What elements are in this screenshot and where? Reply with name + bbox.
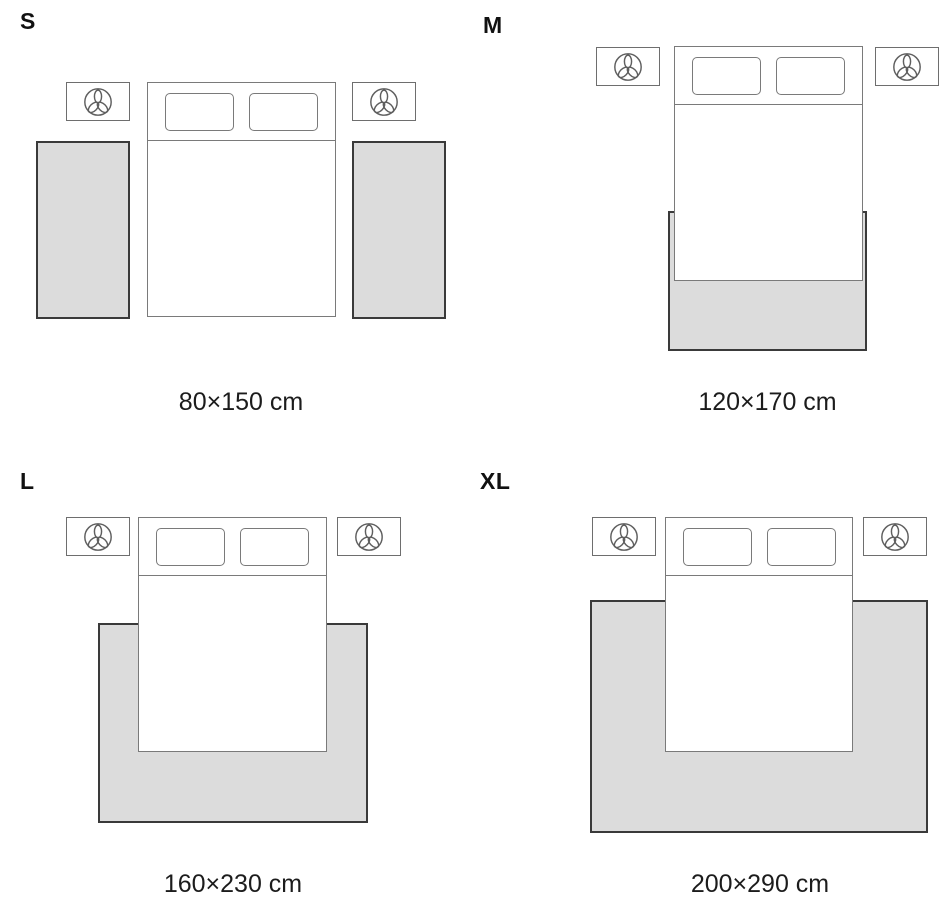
panel-size-xl: XL 200×290 cm: [475, 450, 950, 900]
panel-letter-xl: XL: [480, 468, 510, 495]
nightstand-left: [596, 47, 660, 86]
nightstand-right: [863, 517, 927, 556]
lamp-icon: [367, 85, 401, 119]
nightstand-left: [66, 517, 130, 556]
headboard-divider: [675, 104, 862, 105]
lamp-icon: [81, 85, 115, 119]
nightstand-left: [592, 517, 656, 556]
lamp-icon: [81, 520, 115, 554]
panel-size-s: S 80×150 cm: [0, 0, 475, 450]
nightstand-right: [875, 47, 939, 86]
pillow-left: [692, 57, 761, 95]
size-caption-xl: 200×290 cm: [560, 870, 950, 899]
panel-size-l: L 160×230 cm: [0, 450, 475, 900]
rug-runner-right: [352, 141, 446, 319]
bed: [138, 517, 327, 752]
bed: [665, 517, 853, 752]
pillow-right: [249, 93, 318, 131]
pillow-left: [165, 93, 234, 131]
panel-size-m: M 120×170 cm: [475, 0, 950, 450]
bed: [674, 46, 863, 281]
lamp-icon: [878, 520, 912, 554]
lamp-icon: [611, 50, 645, 84]
nightstand-left: [66, 82, 130, 121]
panel-letter-s: S: [20, 8, 36, 35]
lamp-icon: [352, 520, 386, 554]
pillow-right: [240, 528, 309, 566]
nightstand-right: [337, 517, 401, 556]
panel-letter-l: L: [20, 468, 35, 495]
rug-runner-left: [36, 141, 130, 319]
size-caption-s: 80×150 cm: [36, 388, 446, 417]
headboard-divider: [666, 575, 852, 576]
lamp-icon: [890, 50, 924, 84]
headboard-divider: [139, 575, 326, 576]
headboard-divider: [148, 140, 335, 141]
nightstand-right: [352, 82, 416, 121]
panel-letter-m: M: [483, 12, 503, 39]
pillow-left: [156, 528, 225, 566]
size-caption-m: 120×170 cm: [596, 388, 939, 417]
pillow-right: [776, 57, 845, 95]
bed: [147, 82, 336, 317]
rug-size-guide-diagram: S 80×150 cm M 120×170 cm: [0, 0, 950, 900]
pillow-right: [767, 528, 836, 566]
pillow-left: [683, 528, 752, 566]
lamp-icon: [607, 520, 641, 554]
size-caption-l: 160×230 cm: [33, 870, 433, 899]
